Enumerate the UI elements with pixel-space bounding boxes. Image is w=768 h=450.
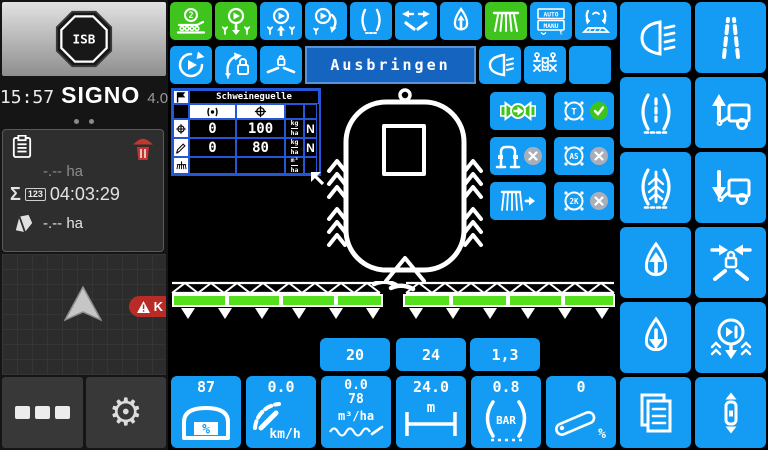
svg-text:m: m <box>427 400 435 416</box>
nav-arrow-icon <box>64 286 102 322</box>
speed-readout[interactable]: 0.0 km/h <box>246 376 316 448</box>
svg-text:ISB: ISB <box>73 32 96 47</box>
fold-lock-icon <box>708 241 754 285</box>
droplet-up-icon <box>633 241 679 285</box>
field-icon <box>14 212 34 234</box>
brand-logo: SIGNO <box>61 82 140 109</box>
map-panel[interactable]: K <box>2 254 166 375</box>
x-icon <box>590 192 608 210</box>
boom-line-2-button[interactable]: 2 <box>170 2 212 40</box>
rate-reset-button[interactable] <box>305 2 347 40</box>
svg-text:%: % <box>202 422 210 437</box>
svg-text:BAR: BAR <box>496 414 516 427</box>
trailer-raise-softkey[interactable] <box>695 77 766 148</box>
stop-octagon-icon: ISB <box>55 10 113 68</box>
nozzle-select-button[interactable] <box>524 46 566 84</box>
svg-text:AUTO: AUTO <box>544 11 559 18</box>
agitator-icon <box>177 51 205 79</box>
spray-forward-button[interactable] <box>490 182 546 220</box>
rate-down-icon <box>221 7 251 36</box>
settings-button[interactable]: ⚙ <box>86 377 167 448</box>
svg-text:2K: 2K <box>569 197 579 206</box>
total-area-counter: -.-- ha <box>3 212 163 234</box>
table-row: m³ha <box>173 157 319 174</box>
status-grid: T AS <box>490 92 614 220</box>
clock: 15:57 <box>0 87 54 108</box>
nozzle-icons <box>181 308 609 319</box>
menu-button[interactable] <box>2 377 83 448</box>
readout-row: 87 % 0.0 km/h 0.0 78 m³/ha <box>171 376 616 448</box>
tire-field-mode-softkey[interactable] <box>620 152 691 223</box>
svg-text:AS: AS <box>569 152 579 161</box>
brand-row: 15:57 SIGNO 4.0 <box>0 82 168 108</box>
pump-valve-icon <box>500 98 536 124</box>
fill-level-button[interactable] <box>440 2 482 40</box>
tank-auto-icon <box>708 316 754 360</box>
svg-text:m³/ha: m³/ha <box>338 409 374 423</box>
documents-softkey[interactable] <box>620 377 691 448</box>
boom-width-button[interactable] <box>395 2 437 40</box>
tire-road-icon <box>633 91 679 135</box>
column-header-sensor <box>189 104 236 119</box>
as-status-button[interactable]: AS <box>554 137 614 175</box>
svg-text:km/h: km/h <box>269 427 300 442</box>
work-light-button[interactable] <box>479 46 521 84</box>
svg-text:%: % <box>598 427 606 442</box>
table-title: Schweineguelle <box>189 90 319 104</box>
gear-icon: ⚙ <box>109 394 143 432</box>
headlight-icon <box>633 16 679 60</box>
svg-text:T: T <box>571 108 577 118</box>
trip-area-counter: -.-- ha <box>3 163 163 180</box>
auto-manu-button[interactable]: AUTO MANU t <box>530 2 572 40</box>
target-icon <box>254 105 267 118</box>
sigma-icon: Σ <box>10 184 21 205</box>
frame-status-button[interactable] <box>490 137 546 175</box>
spreader-icon <box>175 160 188 171</box>
table-row: 0 80 kgha N <box>173 138 319 157</box>
warning-badge[interactable]: K <box>129 296 166 317</box>
total-time-counter: Σ 123 04:03:29 <box>3 184 163 205</box>
spray-on-button[interactable] <box>485 2 527 40</box>
brand-version: 4.0 <box>147 90 168 107</box>
rate-up-button[interactable] <box>260 2 302 40</box>
boom-fold-lock-softkey[interactable] <box>695 227 766 298</box>
rate-curve-down-icon <box>311 7 341 36</box>
scroll-slider-softkey[interactable] <box>695 377 766 448</box>
tank-valve-status-button[interactable]: T <box>554 92 614 130</box>
trailer-down-icon <box>708 166 754 210</box>
tire-field-icon <box>633 166 679 210</box>
driver-delete-icon <box>132 135 154 161</box>
edit-icon <box>175 142 187 154</box>
rate-readout[interactable]: 0.0 78 m³/ha <box>321 376 391 448</box>
boom-width-icon <box>401 8 431 34</box>
tire-button[interactable] <box>350 2 392 40</box>
job-counter-panel[interactable]: -.-- ha Σ 123 04:03:29 -.-- ha <box>2 129 164 252</box>
x-icon <box>524 147 542 165</box>
softkey-panel <box>618 0 768 450</box>
clipboard-icon <box>12 135 32 159</box>
boom-level-icon <box>581 8 611 34</box>
pressure-bar-icon: BAR <box>475 396 537 442</box>
signal-icon <box>204 106 221 118</box>
boom-leveling-button[interactable] <box>575 2 617 40</box>
rate-table[interactable]: Schweineguelle <box>171 88 321 176</box>
frame-icon <box>495 143 521 169</box>
vertical-slider-icon <box>708 391 754 435</box>
auto-fill-softkey[interactable] <box>695 302 766 373</box>
main-screen: 2 <box>168 0 618 450</box>
svg-text:MANU: MANU <box>544 23 559 30</box>
tank-level-icon: % <box>175 396 237 442</box>
spare-button[interactable] <box>569 46 611 84</box>
warning-triangle-icon <box>136 300 151 314</box>
counter-badge-icon: 123 <box>25 188 46 201</box>
documents-icon <box>633 391 679 435</box>
tramline-softkey[interactable] <box>695 2 766 73</box>
spray-arrow-icon <box>500 188 536 214</box>
boom-lock-icon <box>266 53 296 77</box>
page-title: Ausbringen <box>305 46 476 84</box>
slope-readout[interactable]: 0 % <box>546 376 616 448</box>
auto-manu-icon: AUTO MANU t <box>536 7 566 35</box>
check-icon <box>590 102 608 120</box>
svg-text:2: 2 <box>188 11 193 21</box>
setpoint-box-width[interactable]: 24 <box>396 338 466 371</box>
boom-graphic <box>170 281 616 321</box>
tank-level-readout[interactable]: 87 % <box>171 376 241 448</box>
working-width-readout[interactable]: 24.0 m <box>396 376 466 448</box>
pump-status-button[interactable] <box>490 92 546 130</box>
turn-lock-icon <box>222 51 250 79</box>
setpoint-box-rate[interactable]: 20 <box>320 338 390 371</box>
column-header-target <box>236 104 285 119</box>
trailer-lower-softkey[interactable] <box>695 152 766 223</box>
tire-road-mode-softkey[interactable] <box>620 77 691 148</box>
boom-sections <box>173 295 614 306</box>
sidebar: ISB 15:57 SIGNO 4.0 -.-- ha Σ <box>0 0 168 450</box>
speedometer-icon: km/h <box>249 396 313 442</box>
agitator-button[interactable] <box>170 46 212 84</box>
spray-icon <box>491 8 521 34</box>
setpoint-box-pressure[interactable]: 1,3 <box>470 338 540 371</box>
2k-status-button[interactable]: 2K <box>554 182 614 220</box>
2k-valve-icon: 2K <box>561 188 587 214</box>
t-valve-icon: T <box>561 98 587 124</box>
page-indicator <box>0 119 168 124</box>
expand-table-icon[interactable] <box>309 170 325 186</box>
boom-line-2-icon: 2 <box>176 7 206 35</box>
pressure-readout[interactable]: 0.8 BAR <box>471 376 541 448</box>
target-icon <box>175 123 187 135</box>
headlight-icon <box>485 52 515 78</box>
as-valve-icon: AS <box>561 143 587 169</box>
x-icon <box>590 147 608 165</box>
rate-unit-icon: m³/ha <box>325 408 387 442</box>
headland-turn-lock-button[interactable] <box>215 46 257 84</box>
isb-stop-button[interactable]: ISB <box>2 2 166 76</box>
work-light-softkey[interactable] <box>620 2 691 73</box>
table-row: 0 100 kgha N <box>173 119 319 138</box>
boom-lock-button[interactable] <box>260 46 302 84</box>
slope-icon: % <box>549 396 613 442</box>
droplet-down-icon <box>633 316 679 360</box>
menu-icon <box>15 406 70 419</box>
droplet-up-icon <box>448 7 474 35</box>
fill-decrease-softkey[interactable] <box>620 302 691 373</box>
fill-increase-softkey[interactable] <box>620 227 691 298</box>
flag-icon <box>175 91 187 103</box>
tire-icon <box>357 7 385 35</box>
tank-graphic <box>326 86 484 284</box>
trailer-up-icon <box>708 91 754 135</box>
tramline-icon <box>708 16 754 60</box>
nozzle-select-icon <box>530 52 560 78</box>
rate-auto-down-button[interactable] <box>215 2 257 40</box>
svg-text:t: t <box>559 31 562 36</box>
width-icon: m <box>400 396 462 442</box>
rate-up-icon <box>266 7 296 36</box>
